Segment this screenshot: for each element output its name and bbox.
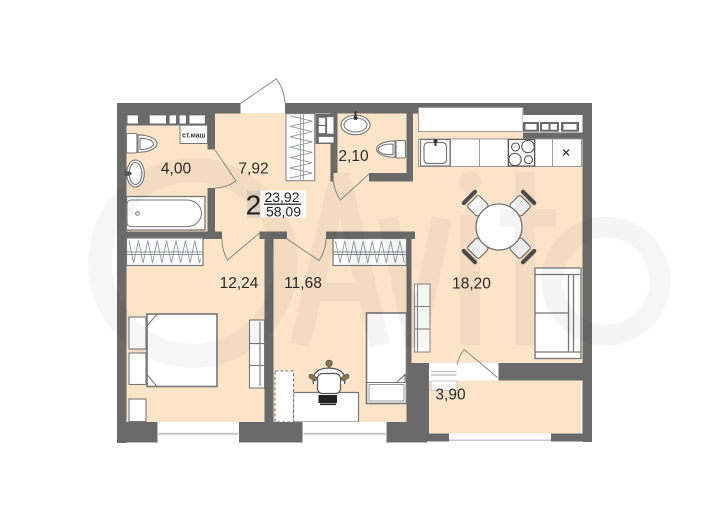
svg-text:12,24: 12,24 xyxy=(220,275,259,292)
svg-text:3,90: 3,90 xyxy=(435,387,466,404)
svg-text:2,10: 2,10 xyxy=(338,148,369,165)
svg-text:ст.маш: ст.маш xyxy=(182,133,206,140)
